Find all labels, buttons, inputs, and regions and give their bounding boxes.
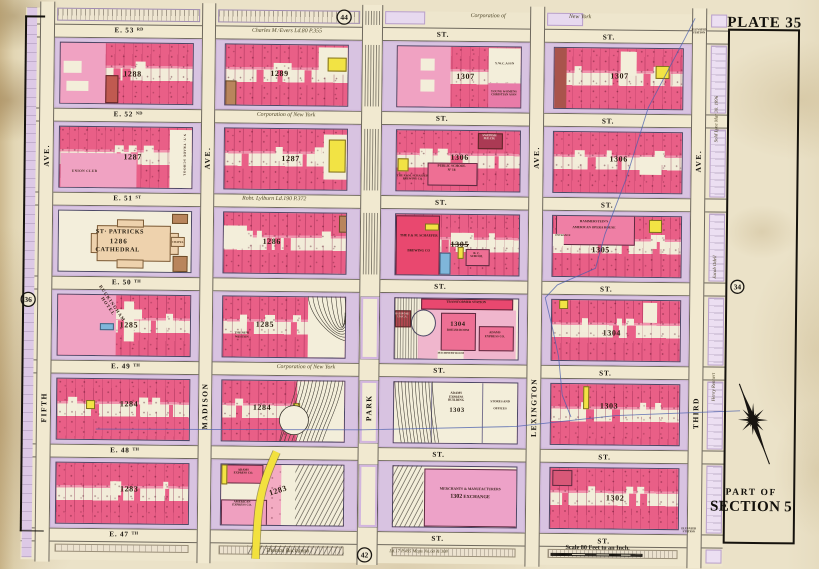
- svg-text:44: 44: [340, 13, 348, 22]
- svg-text:36: 36: [24, 295, 32, 304]
- svg-text:42: 42: [361, 550, 369, 559]
